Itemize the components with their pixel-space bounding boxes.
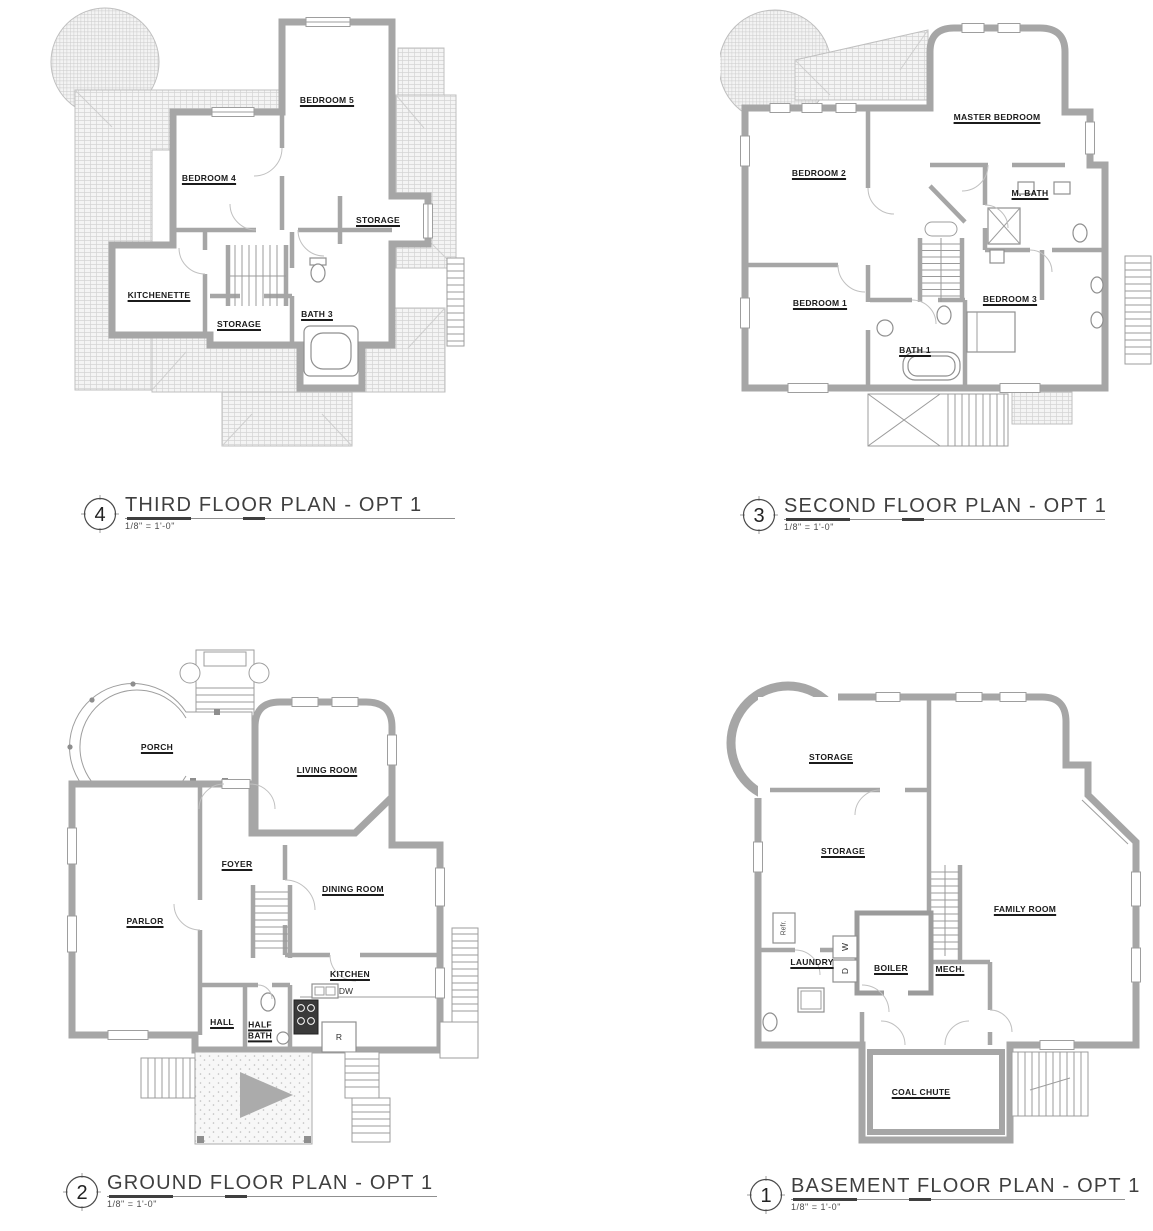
second-floor-plan-panel: MASTER BEDROOM BEDROOM 2 M. BATH BEDROOM… — [720, 0, 1153, 470]
back-stairs-left — [141, 1058, 195, 1098]
room-label: COAL CHUTE — [892, 1087, 951, 1097]
room-label: KITCHEN — [330, 969, 370, 979]
room-label: STORAGE — [217, 319, 261, 329]
plan-number-circle: 2 — [63, 1173, 101, 1211]
room-label: STORAGE — [809, 752, 853, 762]
room-label: HALL — [210, 1017, 234, 1027]
plan-scale: 1/8" = 1'-0" — [784, 522, 1105, 532]
plan-number: 4 — [94, 504, 105, 526]
ground-floor-title-block: 2 GROUND FLOOR PLAN - OPT 1 1/8" = 1'-0" — [63, 1173, 437, 1211]
front-steps — [180, 650, 269, 716]
plan-title: SECOND FLOOR PLAN - OPT 1 — [784, 494, 1105, 520]
title-underline-accent — [225, 1195, 247, 1198]
room-label: HALF BATH — [241, 1019, 279, 1040]
third-floor-plan-drawing — [40, 0, 500, 470]
basement-plan-panel: STORAGE STORAGE FAMILY ROOM LAUNDRY BOIL… — [720, 670, 1153, 1170]
back-deck — [195, 1052, 312, 1144]
room-label: FOYER — [222, 859, 253, 869]
refrigerator-label: R — [336, 1032, 342, 1042]
basement-title-block: 1 BASEMENT FLOOR PLAN - OPT 1 1/8" = 1'-… — [747, 1176, 1125, 1214]
room-label: MECH. — [936, 964, 965, 974]
back-stairs-right — [345, 1052, 390, 1142]
room-label: STORAGE — [356, 215, 400, 225]
refrigerator-label: Refr. — [781, 921, 788, 936]
bed-furniture — [967, 312, 1015, 352]
plan-number-circle: 1 — [747, 1176, 785, 1214]
title-underline-accent — [909, 1198, 931, 1201]
third-floor-title-block: 4 THIRD FLOOR PLAN - OPT 1 1/8" = 1'-0" — [81, 495, 455, 533]
exterior-stair-bottom-right — [1012, 1052, 1088, 1116]
ground-floor-plan-panel: PORCH LIVING ROOM FOYER DINING ROOM PARL… — [40, 640, 500, 1160]
exterior-stair — [447, 258, 464, 346]
plan-title: BASEMENT FLOOR PLAN - OPT 1 — [791, 1174, 1125, 1200]
plan-number: 2 — [76, 1182, 87, 1204]
room-label: PORCH — [141, 742, 173, 752]
title-underline-accent — [793, 1198, 857, 1201]
plan-scale: 1/8" = 1'-0" — [107, 1199, 437, 1209]
room-label: LIVING ROOM — [297, 765, 357, 775]
title-underline-accent — [127, 517, 191, 520]
room-label: BEDROOM 3 — [983, 294, 1037, 304]
room-label: BATH 3 — [301, 309, 333, 319]
room-label: BATH 1 — [899, 345, 931, 355]
plan-title: GROUND FLOOR PLAN - OPT 1 — [107, 1171, 437, 1197]
title-underline-accent — [243, 517, 265, 520]
room-label: PARLOR — [126, 916, 163, 926]
exterior-stair-right — [1125, 256, 1151, 364]
title-underline-accent — [786, 518, 850, 521]
room-label: MASTER BEDROOM — [954, 112, 1041, 122]
plan-title: THIRD FLOOR PLAN - OPT 1 — [125, 493, 455, 519]
room-label: DINING ROOM — [322, 884, 384, 894]
room-label: M. BATH — [1012, 188, 1049, 198]
boiler-room-walls — [857, 913, 931, 993]
exterior-walls — [112, 22, 428, 388]
washer-label: W — [840, 943, 850, 951]
room-label: BEDROOM 5 — [300, 95, 354, 105]
room-label: BEDROOM 4 — [182, 173, 236, 183]
third-floor-plan-panel: BEDROOM 5 BEDROOM 4 STORAGE KITCHENETTE … — [40, 0, 500, 470]
room-label: BOILER — [874, 963, 908, 973]
dishwasher-label: DW — [339, 986, 353, 996]
plan-number: 1 — [760, 1185, 771, 1207]
ground-floor-plan-drawing — [40, 640, 500, 1160]
title-underline-accent — [109, 1195, 173, 1198]
room-label: FAMILY ROOM — [994, 904, 1056, 914]
plan-number-circle: 3 — [740, 496, 778, 534]
room-label: BEDROOM 1 — [793, 298, 847, 308]
plan-scale: 1/8" = 1'-0" — [791, 1202, 1125, 1212]
title-underline-accent — [902, 518, 924, 521]
exterior-stair-bottom — [868, 394, 1008, 446]
exterior-stair-right — [440, 928, 478, 1058]
dryer-label: D — [840, 968, 850, 974]
second-floor-title-block: 3 SECOND FLOOR PLAN - OPT 1 1/8" = 1'-0" — [740, 496, 1105, 534]
room-label: KITCHENETTE — [128, 290, 191, 300]
drawing-sheet: BEDROOM 5 BEDROOM 4 STORAGE KITCHENETTE … — [0, 0, 1153, 1231]
room-label: LAUNDRY — [790, 957, 833, 967]
plan-number-circle: 4 — [81, 495, 119, 533]
plan-number: 3 — [753, 505, 764, 527]
room-label: STORAGE — [821, 846, 865, 856]
room-label: BEDROOM 2 — [792, 168, 846, 178]
plan-scale: 1/8" = 1'-0" — [125, 521, 455, 531]
second-floor-plan-drawing — [720, 0, 1153, 470]
